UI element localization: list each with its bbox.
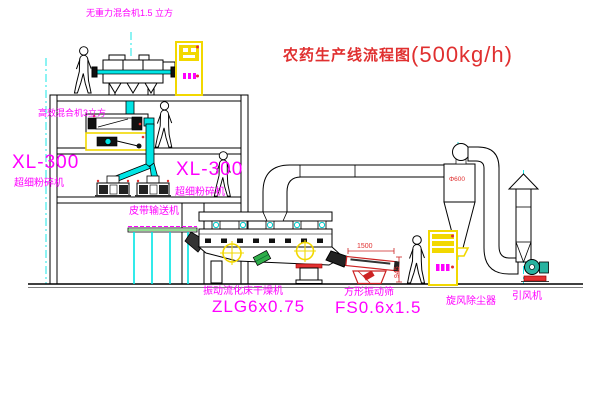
label-high-mixer: 高效混合机3立方 bbox=[38, 109, 106, 118]
fan-base bbox=[524, 276, 546, 281]
control-cabinet-bottom bbox=[429, 231, 457, 285]
exhaust-stack bbox=[509, 174, 538, 262]
wall-left bbox=[50, 95, 57, 284]
dim-screen-length: 1500 bbox=[357, 243, 373, 250]
control-cabinet-top bbox=[176, 42, 202, 95]
label-gravity-mixer: 无重力混合机1.5 立方 bbox=[86, 9, 173, 18]
fluid-bed-dryer bbox=[199, 212, 349, 284]
dryer-support-left bbox=[211, 261, 222, 283]
ground-line bbox=[28, 284, 583, 288]
person-figure bbox=[155, 102, 171, 147]
title-text: 农药生产线流程图 bbox=[283, 47, 411, 64]
person-figure bbox=[74, 47, 91, 93]
status-dot bbox=[451, 235, 454, 238]
person-figure bbox=[408, 236, 425, 283]
label-conveyor: 皮带输送机 bbox=[129, 207, 179, 217]
process-flow-diagram: 农药生产线流程图(500kg/h) 无重力混合机1.5 立方 高效混合机3立方 … bbox=[0, 0, 600, 403]
cyclone-top-outlet bbox=[453, 144, 470, 161]
status-dot bbox=[196, 46, 199, 49]
label-fan: 引风机 bbox=[512, 292, 542, 302]
label-screen-model: FS0.6x1.5 bbox=[335, 299, 422, 316]
dim-cyclone-diameter: Φ600 bbox=[449, 177, 465, 184]
label-mill-left-name: 超细粉碎机 bbox=[14, 179, 64, 189]
label-dryer-model: ZLG6x0.75 bbox=[212, 298, 305, 315]
cabinet-indicator bbox=[183, 73, 186, 79]
label-screen-name: 方形振动筛 bbox=[344, 288, 394, 298]
pulverizer-right bbox=[135, 176, 171, 198]
cabinet-indicator bbox=[436, 264, 440, 271]
induced-draft-fan bbox=[521, 260, 549, 282]
label-mill-right-model: XL-300 bbox=[176, 160, 243, 179]
dryer-pedestal bbox=[300, 268, 318, 280]
label-mill-left-model: XL-300 bbox=[12, 153, 79, 172]
title-capacity: (500kg/h) bbox=[411, 42, 513, 67]
label-mill-right-name: 超细粉碎机 bbox=[175, 188, 225, 198]
rain-cap bbox=[509, 174, 538, 189]
diagram-title: 农药生产线流程图(500kg/h) bbox=[283, 42, 513, 68]
dim-screen-height: 945 bbox=[394, 266, 401, 278]
gravity-mixer bbox=[92, 55, 179, 95]
label-dryer-name: 振动流化床干燥机 bbox=[203, 287, 283, 297]
floor-slab-top bbox=[50, 95, 248, 101]
mixer-shaft bbox=[95, 70, 173, 74]
pulverizer-left bbox=[95, 176, 131, 198]
label-cyclone: 旋风除尘器 bbox=[446, 297, 496, 307]
